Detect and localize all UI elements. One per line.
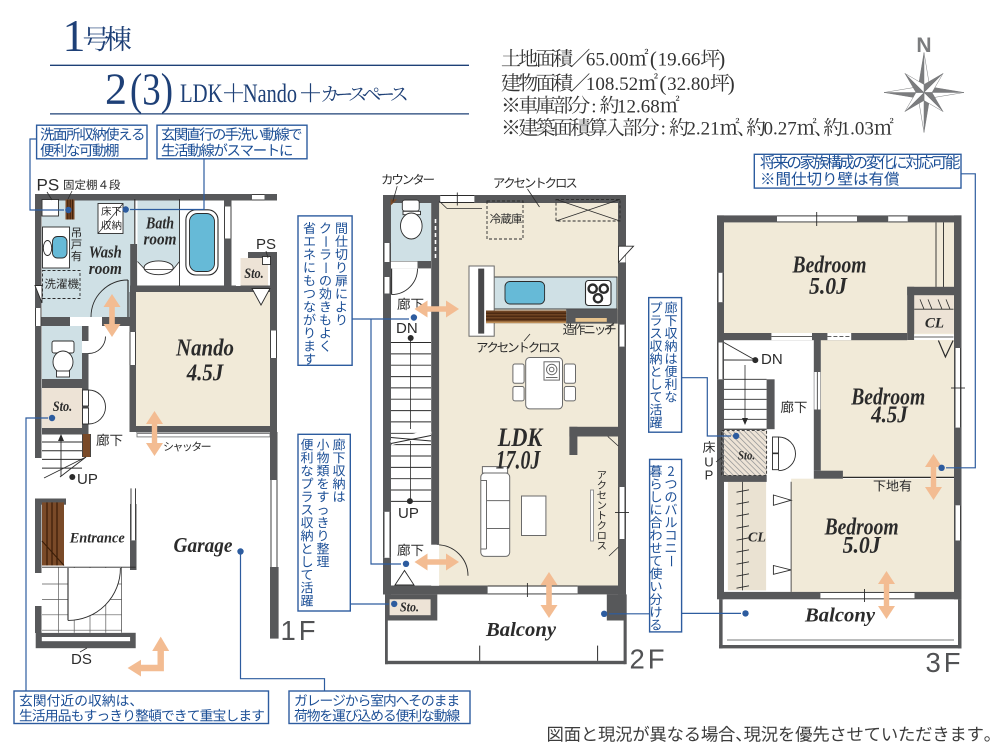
svg-text:PS: PS [256,236,276,253]
svg-text:(3): (3) [130,64,173,115]
svg-text:108.52: 108.52 [586,74,638,95]
svg-text:1F: 1F [281,615,319,646]
svg-text:3F: 3F [926,647,964,678]
svg-text:1.03: 1.03 [841,119,874,140]
svg-text:19.66: 19.66 [658,50,701,71]
svg-text:(: ( [659,72,666,96]
svg-text:Nando: Nando [243,79,297,108]
svg-text:P: P [705,468,714,483]
svg-text:5.0J: 5.0J [843,533,882,559]
svg-text:LDK: LDK [180,79,223,108]
svg-text:UP: UP [398,505,419,522]
svg-text:4.5J: 4.5J [186,361,224,387]
svg-text:(: ( [650,47,657,71]
svg-text:Sto.: Sto. [738,448,755,463]
svg-text:Sto.: Sto. [400,601,419,616]
svg-text:CL: CL [748,531,766,546]
svg-text:Garage: Garage [174,533,233,557]
svg-text:1: 1 [63,10,86,61]
svg-text:room: room [89,259,122,278]
svg-text:Balcony: Balcony [485,619,556,641]
svg-text:Balcony: Balcony [804,605,875,627]
svg-text:DN: DN [396,320,418,337]
svg-text:Entrance: Entrance [69,531,125,547]
svg-text:12.68: 12.68 [617,96,660,117]
svg-text:32.80: 32.80 [667,74,710,95]
svg-text:17.0J: 17.0J [496,446,541,475]
svg-text:DS: DS [71,651,92,668]
svg-text:5.0J: 5.0J [809,274,848,300]
svg-text:room: room [144,230,177,249]
svg-text:2F: 2F [630,644,668,675]
svg-text:0.27: 0.27 [764,119,797,140]
svg-text:65.00: 65.00 [586,50,629,71]
svg-text:Nando: Nando [175,336,234,362]
svg-text:Sto.: Sto. [53,399,73,415]
svg-text::: : [591,96,596,117]
svg-text:4.5J: 4.5J [870,403,908,429]
svg-text::: : [661,119,666,140]
svg-text:2: 2 [105,65,127,114]
svg-text:N: N [916,34,931,57]
svg-text:): ) [718,47,725,71]
svg-text:): ) [728,72,735,96]
svg-text:2.21: 2.21 [686,119,719,140]
svg-text:PS: PS [37,176,60,195]
svg-text:DN: DN [761,351,783,368]
svg-text:UP: UP [77,471,98,488]
svg-text:Sto.: Sto. [244,266,264,282]
svg-text:CL: CL [925,316,944,332]
